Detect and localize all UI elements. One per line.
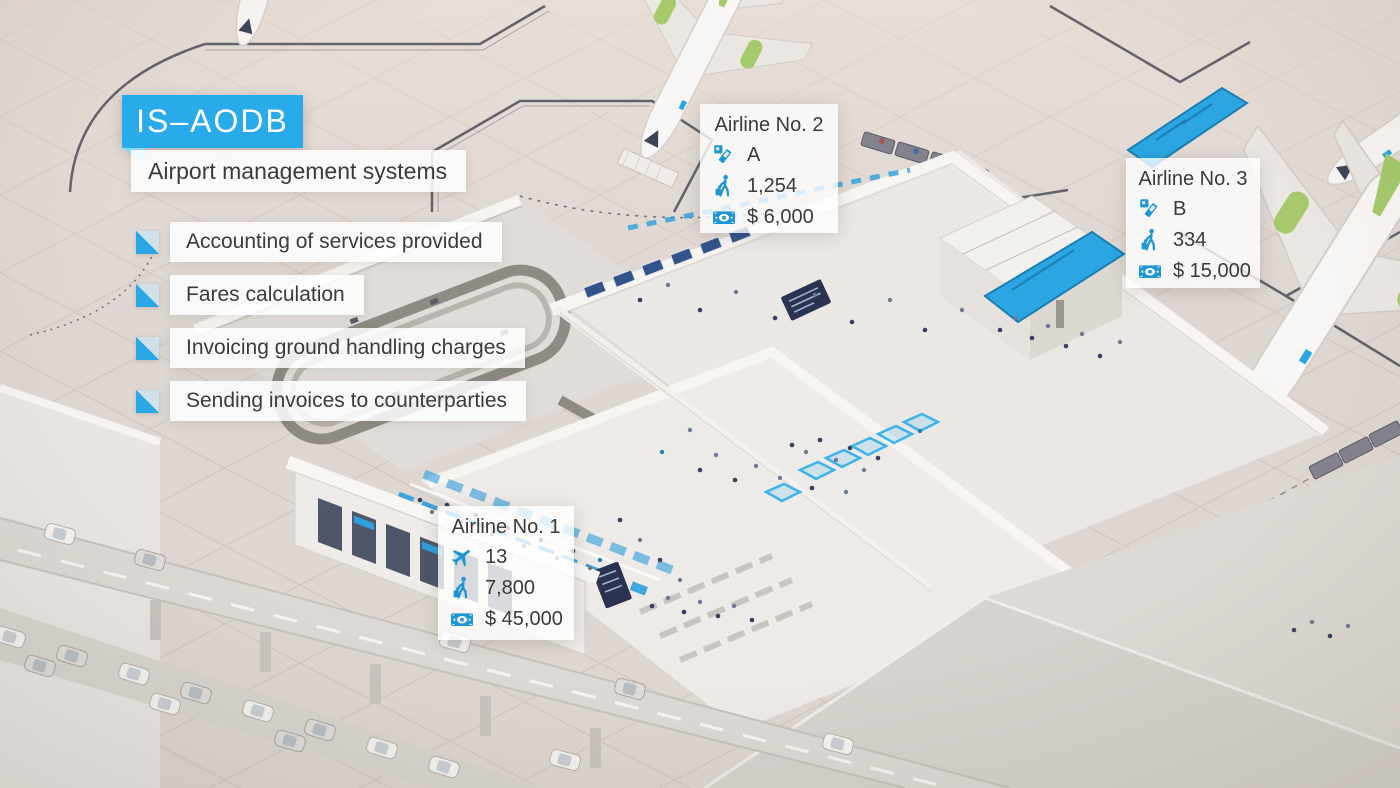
card-title: Airline No. 2 (704, 114, 834, 137)
product-subtitle: Airport management systems (148, 158, 447, 185)
stat-row-passengers: 7,800 (450, 575, 568, 601)
blue-square-bullet-icon (136, 390, 159, 413)
feature-label: Sending invoices to counterparties (170, 381, 526, 421)
stat-value: 1,254 (747, 175, 797, 198)
stat-value: $ 6,000 (747, 206, 814, 229)
airline-card-2: Airline No. 2 A (700, 104, 838, 233)
stat-row-passengers: 334 (1138, 227, 1254, 253)
stat-row-revenue: $ 45,000 (450, 606, 568, 632)
stat-row-passengers: 1,254 (712, 173, 832, 199)
money-icon (712, 205, 736, 229)
stat-value: 334 (1173, 229, 1206, 252)
product-badge: IS–AODB (122, 95, 303, 148)
blue-square-bullet-icon (136, 337, 159, 360)
feature-item: Fares calculation (136, 275, 364, 315)
stat-row-revenue: $ 6,000 (712, 204, 832, 230)
money-icon (1138, 259, 1162, 283)
product-subtitle-bar: Airport management systems (131, 150, 466, 192)
feature-label: Accounting of services provided (170, 222, 502, 262)
feature-item: Sending invoices to counterparties (136, 381, 526, 421)
stat-row-terminal: A (712, 142, 832, 168)
money-icon (450, 607, 474, 631)
stat-value: 7,800 (485, 577, 535, 600)
product-title: IS–AODB (136, 103, 289, 140)
boarding-pass-icon (1138, 197, 1162, 221)
passenger-icon (712, 174, 736, 198)
feature-item: Accounting of services provided (136, 222, 502, 262)
stat-row-flights: 13 (450, 544, 568, 570)
feature-item: Invoicing ground handling charges (136, 328, 525, 368)
passenger-icon (450, 576, 474, 600)
boarding-pass-icon (712, 143, 736, 167)
passenger-icon (1138, 228, 1162, 252)
stat-value: B (1173, 198, 1186, 221)
blue-square-bullet-icon (136, 284, 159, 307)
infographic-canvas: IS–AODB Airport management systems Accou… (0, 0, 1400, 788)
stat-row-terminal: B (1138, 196, 1254, 222)
card-title: Airline No. 1 (442, 516, 570, 539)
blue-square-bullet-icon (136, 231, 159, 254)
airline-card-1: Airline No. 1 13 7,800 (438, 506, 574, 640)
airplane-icon (450, 545, 474, 569)
stat-value: A (747, 144, 760, 167)
feature-label: Fares calculation (170, 275, 364, 315)
airline-card-3: Airline No. 3 B (1126, 158, 1260, 288)
stat-value: 13 (485, 546, 507, 569)
feature-label: Invoicing ground handling charges (170, 328, 525, 368)
stat-value: $ 45,000 (485, 608, 563, 631)
stat-row-revenue: $ 15,000 (1138, 258, 1254, 284)
card-title: Airline No. 3 (1130, 168, 1256, 191)
stat-value: $ 15,000 (1173, 260, 1251, 283)
